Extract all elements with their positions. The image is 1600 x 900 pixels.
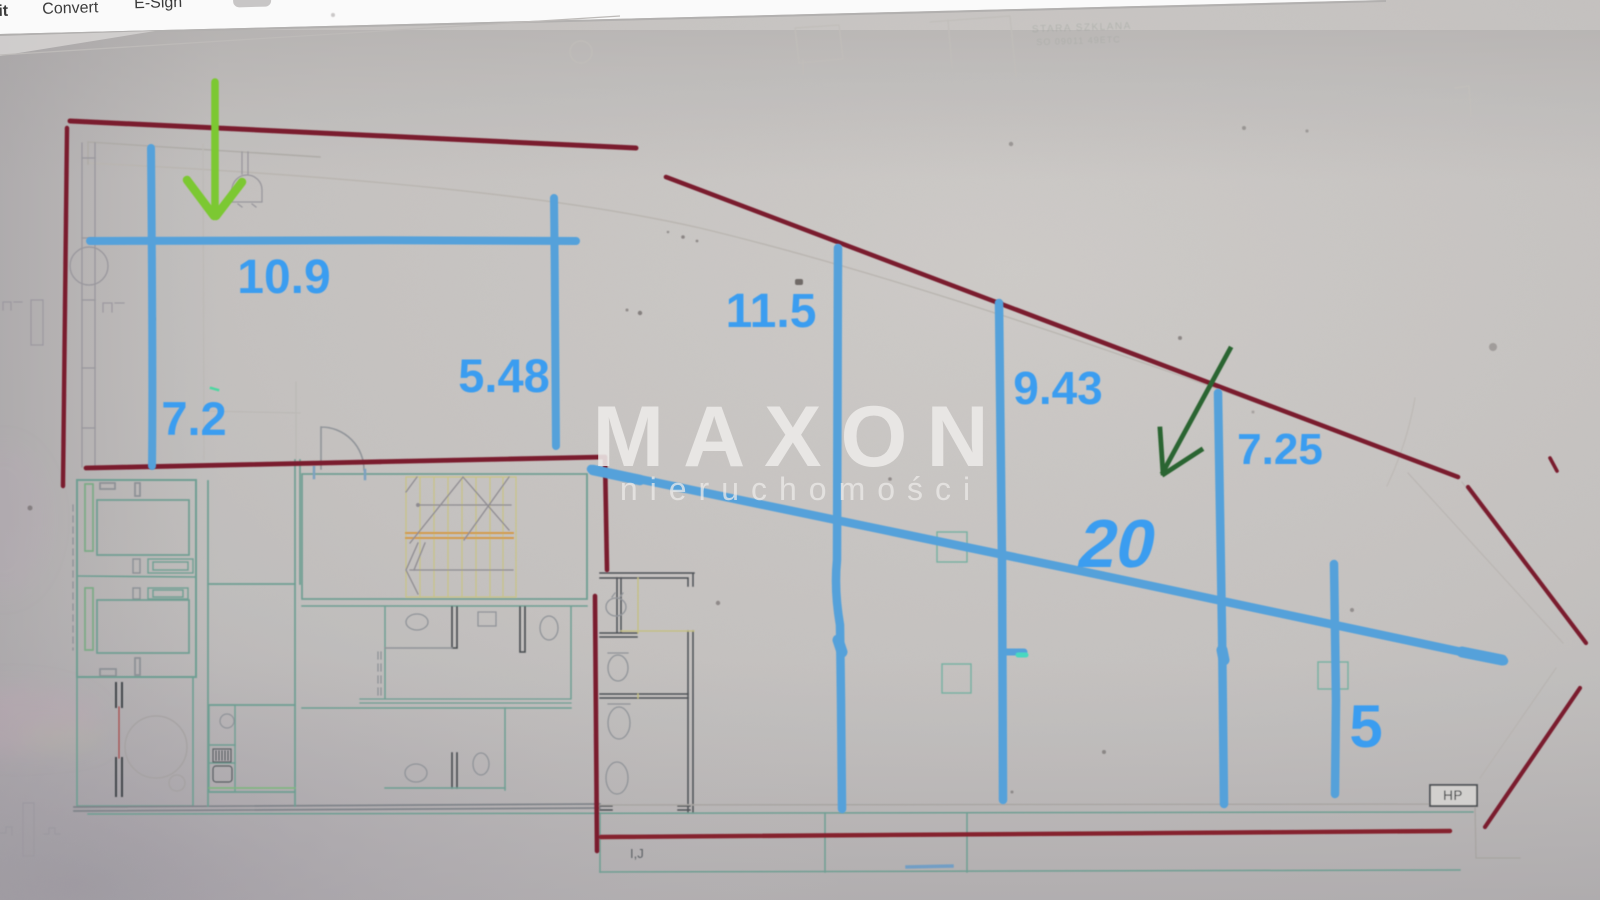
svg-text:7.2: 7.2 [161,392,226,445]
svg-text:I,J: I,J [630,846,644,861]
svg-text:5: 5 [1349,693,1382,760]
svg-text:9.43: 9.43 [1013,362,1103,414]
svg-text:5.48: 5.48 [458,349,549,402]
svg-text:E-Sign: E-Sign [134,0,182,12]
svg-text:7.25: 7.25 [1237,425,1323,474]
svg-text:Convert: Convert [42,0,99,18]
svg-text:it: it [0,3,9,20]
svg-text:10.9: 10.9 [237,251,330,304]
svg-text:20: 20 [1072,506,1164,582]
svg-text:nieruchomości: nieruchomości [620,471,982,507]
svg-text:HP: HP [1443,788,1463,803]
svg-text:11.5: 11.5 [726,285,817,338]
